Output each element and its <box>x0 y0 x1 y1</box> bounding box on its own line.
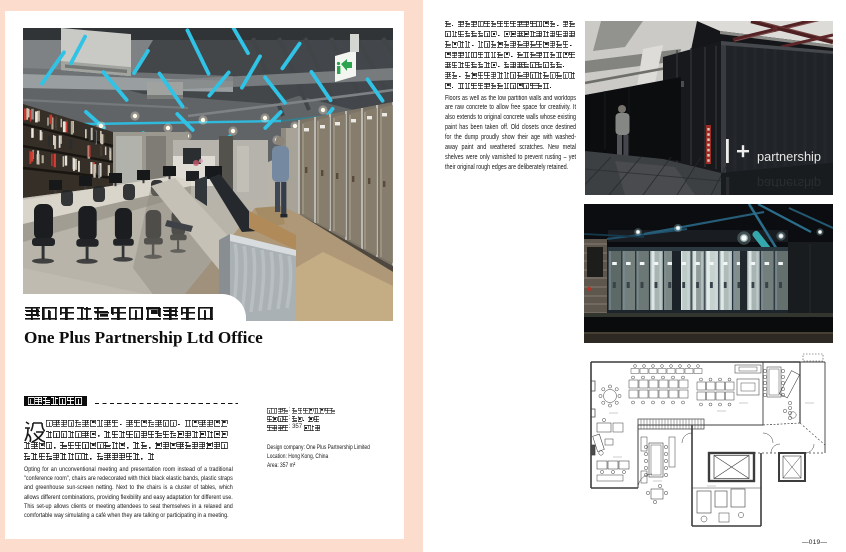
svg-text:partnership: partnership <box>757 149 821 164</box>
svg-text:partnership: partnership <box>757 176 821 191</box>
